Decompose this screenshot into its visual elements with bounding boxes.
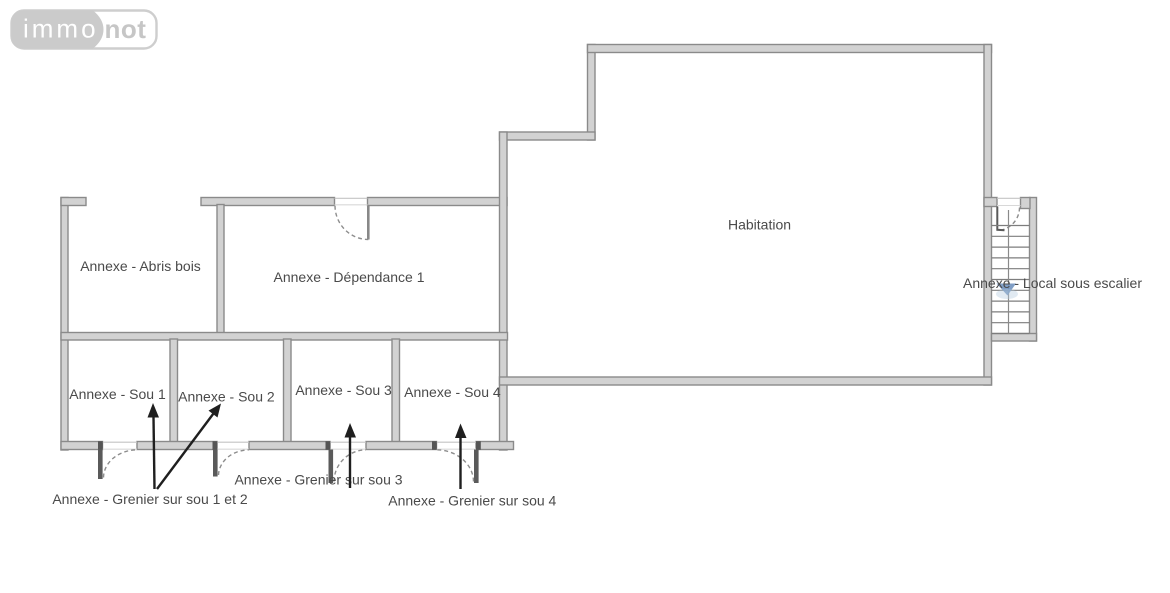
svg-text:Annexe - Local sous escalier: Annexe - Local sous escalier [963, 275, 1142, 291]
svg-text:immo: immo [23, 14, 99, 44]
svg-text:Habitation: Habitation [728, 217, 791, 233]
svg-text:Annexe - Dépendance 1: Annexe - Dépendance 1 [274, 269, 425, 285]
svg-text:Annexe - Abris bois: Annexe - Abris bois [80, 258, 201, 274]
svg-text:Annexe - Grenier sur sou 1 et: Annexe - Grenier sur sou 1 et 2 [52, 491, 248, 507]
svg-text:Annexe - Sou 4: Annexe - Sou 4 [404, 384, 501, 400]
svg-text:Annexe - Sou 3: Annexe - Sou 3 [295, 382, 392, 398]
svg-text:Annexe - Grenier sur sou 3: Annexe - Grenier sur sou 3 [234, 472, 402, 488]
svg-text:Annexe - Sou 2: Annexe - Sou 2 [178, 389, 275, 405]
svg-text:Annexe - Grenier sur sou 4: Annexe - Grenier sur sou 4 [388, 493, 556, 509]
svg-text:Annexe - Sou 1: Annexe - Sou 1 [69, 386, 166, 402]
svg-text:not: not [105, 14, 147, 44]
